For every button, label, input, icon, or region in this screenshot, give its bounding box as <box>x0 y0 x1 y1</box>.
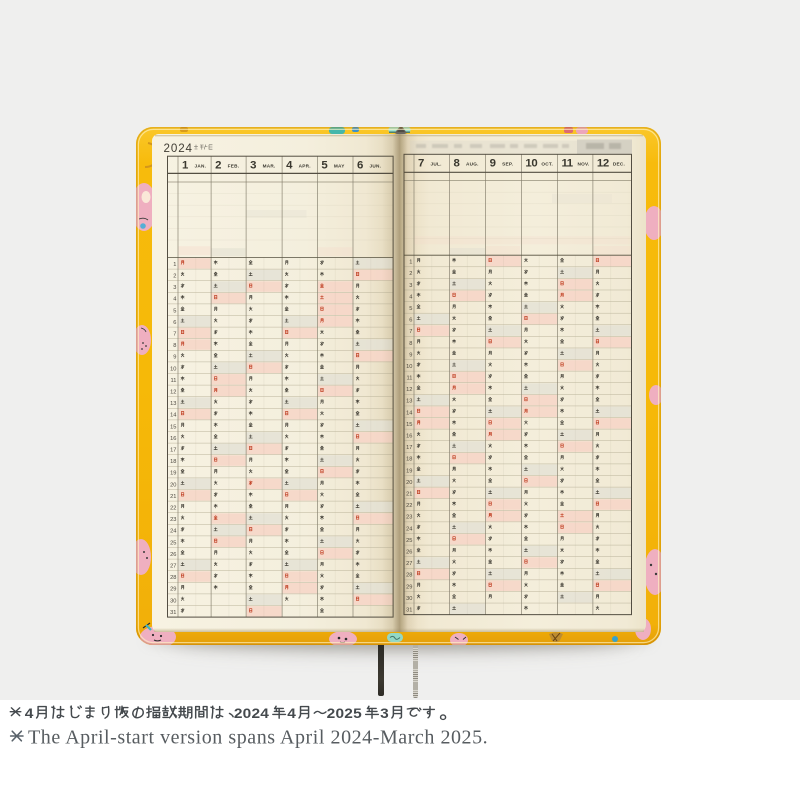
svg-text:29: 29 <box>170 587 176 593</box>
svg-text:24: 24 <box>170 529 176 535</box>
svg-text:15: 15 <box>170 424 176 430</box>
svg-text:31: 31 <box>170 610 176 616</box>
svg-text:AUG.: AUG. <box>466 162 479 167</box>
svg-text:25: 25 <box>170 540 176 546</box>
svg-text:3: 3 <box>380 706 389 721</box>
svg-text:22: 22 <box>170 506 176 512</box>
svg-text:21: 21 <box>170 494 176 500</box>
svg-text:The April-start version spans: The April-start version spans April 2024… <box>28 727 488 749</box>
svg-text:9: 9 <box>173 355 176 361</box>
svg-text:10: 10 <box>525 158 537 170</box>
svg-text:5: 5 <box>321 159 328 171</box>
svg-text:4: 4 <box>173 297 176 303</box>
svg-text:26: 26 <box>170 552 176 558</box>
svg-text:8: 8 <box>453 158 459 170</box>
svg-text:14: 14 <box>170 413 176 419</box>
svg-text:5: 5 <box>173 308 176 314</box>
svg-text:20: 20 <box>170 482 176 488</box>
svg-text:2024: 2024 <box>163 142 192 155</box>
svg-text:8: 8 <box>173 343 176 349</box>
svg-text:JUL.: JUL. <box>430 162 441 167</box>
svg-text:13: 13 <box>170 401 176 407</box>
svg-text:3: 3 <box>250 159 256 171</box>
svg-text:7: 7 <box>173 332 176 338</box>
svg-text:MAR.: MAR. <box>262 164 275 169</box>
svg-text:MAY: MAY <box>333 164 344 169</box>
svg-text:12: 12 <box>170 390 176 396</box>
svg-text:28: 28 <box>170 575 176 581</box>
svg-text:9: 9 <box>489 158 495 170</box>
svg-text:17: 17 <box>170 448 176 454</box>
svg-text:7: 7 <box>418 158 424 170</box>
svg-text:SEP.: SEP. <box>502 162 513 167</box>
svg-text:1: 1 <box>182 159 189 171</box>
svg-text:6: 6 <box>357 159 363 171</box>
svg-text:APR.: APR. <box>298 164 310 169</box>
svg-text:30: 30 <box>170 598 176 604</box>
svg-text:4: 4 <box>25 706 34 721</box>
svg-text:23: 23 <box>170 517 176 523</box>
svg-text:FEB.: FEB. <box>227 164 239 169</box>
svg-text:3: 3 <box>173 285 176 291</box>
svg-text:JUN.: JUN. <box>369 164 381 169</box>
svg-text:11: 11 <box>561 158 573 170</box>
svg-text:DEC.: DEC. <box>612 162 624 167</box>
svg-text:11: 11 <box>170 378 176 384</box>
svg-text:19: 19 <box>170 471 176 477</box>
svg-text:10: 10 <box>170 366 176 372</box>
svg-text:16: 16 <box>170 436 176 442</box>
svg-text:4: 4 <box>287 706 296 721</box>
svg-text:1: 1 <box>173 262 176 268</box>
svg-text:2024: 2024 <box>234 706 270 721</box>
svg-text:JAN.: JAN. <box>194 164 206 169</box>
svg-text:6: 6 <box>173 320 176 326</box>
svg-text:OCT.: OCT. <box>541 162 553 167</box>
svg-text:2025: 2025 <box>327 706 362 721</box>
svg-text:2: 2 <box>215 159 221 171</box>
svg-text:4: 4 <box>286 159 293 171</box>
svg-text:12: 12 <box>596 158 608 170</box>
svg-text:2: 2 <box>173 274 176 280</box>
svg-text:NOV.: NOV. <box>577 162 589 167</box>
svg-text:27: 27 <box>170 564 176 570</box>
svg-text:18: 18 <box>170 459 176 465</box>
